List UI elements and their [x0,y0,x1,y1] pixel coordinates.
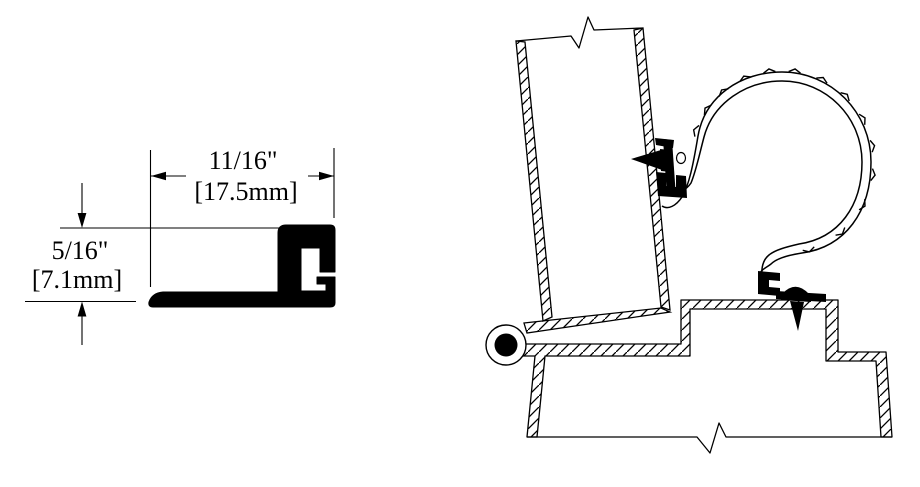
technical-drawing-canvas: 11/16" [17.5mm] 5/16" [7.1mm] [0,0,920,487]
door-mount-extrusion [631,138,687,198]
door-screw-washer [677,153,686,164]
width-dimension-imperial: 11/16" [209,146,278,175]
arrowhead-down [78,213,87,228]
arrowhead-left [151,172,166,180]
extrusion-profile-silhouette [149,225,335,307]
arrowhead-up [78,302,87,317]
height-dimension-metric: [7.1mm] [32,265,122,294]
width-dimension-metric: [17.5mm] [194,177,297,206]
assembly-section-drawing [486,17,892,453]
break-line-bottom [527,423,892,453]
seal-rib-ticks [692,68,876,254]
frame-screw-point [790,301,804,331]
loop-seal-outer-edge [662,72,871,273]
arrowhead-right [319,172,334,180]
pivot-pin [495,334,518,357]
door-left-wall [516,41,552,321]
height-dimension-imperial: 5/16" [52,236,109,265]
profile-dimension-drawing: 11/16" [17.5mm] 5/16" [7.1mm] [25,146,335,345]
loop-seal-inner-edge [682,81,862,277]
break-line-top [516,17,643,48]
